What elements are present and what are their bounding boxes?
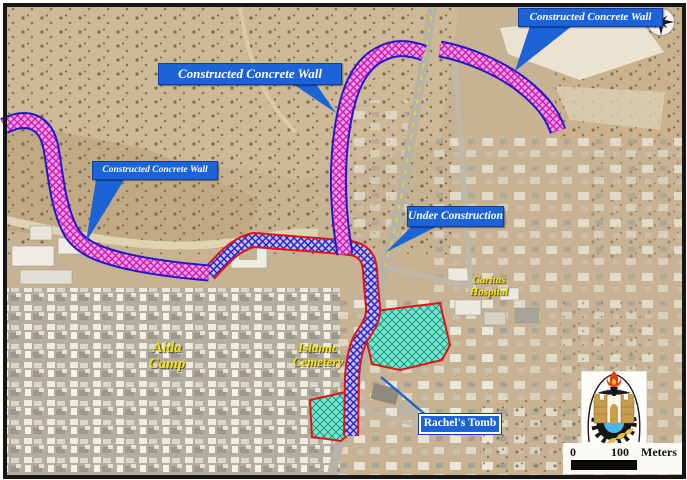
label-rachels-tomb: Rachel's Tomb — [419, 414, 501, 434]
place-label-aida-camp: Aida Camp — [128, 340, 206, 372]
scale-bar-rule — [571, 460, 637, 470]
urban-dense-aida — [4, 288, 340, 476]
municipality-emblem-icon — [581, 371, 647, 449]
place-label-line: Hospital — [454, 287, 524, 299]
scale-bar: 0 100 Meters — [563, 443, 682, 474]
label-constructed-wall-top: Constructed Concrete Wall — [158, 63, 342, 85]
place-label-line: Cemetery — [279, 355, 357, 369]
place-label-line: Islamic — [279, 341, 357, 355]
scale-unit-label: Meters — [641, 445, 677, 460]
place-label-caritas-hospital: Caritas Hospital — [454, 275, 524, 299]
label-constructed-wall-right: Constructed Concrete Wall — [518, 8, 663, 27]
tree-cluster-e — [560, 300, 650, 380]
place-label-line: Aida — [128, 340, 206, 356]
label-constructed-wall-left: Constructed Concrete Wall — [92, 161, 218, 180]
scale-start-label: 0 — [570, 445, 576, 460]
place-label-islamic-cemetery: Islamic Cemetery — [279, 341, 357, 369]
satellite-map — [0, 0, 687, 480]
scale-end-label: 100 — [611, 445, 629, 460]
place-label-line: Camp — [128, 356, 206, 372]
label-under-construction: Under Construction — [407, 206, 504, 227]
map-page: Constructed Concrete Wall Constructed Co… — [0, 0, 687, 480]
